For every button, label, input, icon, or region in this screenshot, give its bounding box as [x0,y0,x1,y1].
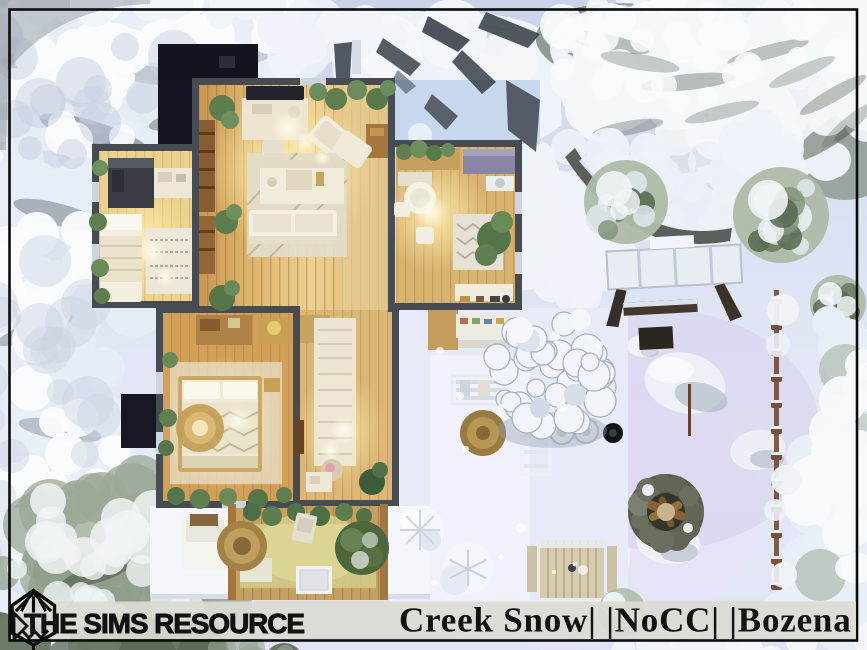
svg-text:THE SIMS RESOURCE: THE SIMS RESOURCE [24,608,304,639]
svg-text:Creek Snow| |NoCC| |Bozena: Creek Snow| |NoCC| |Bozena [399,601,852,640]
